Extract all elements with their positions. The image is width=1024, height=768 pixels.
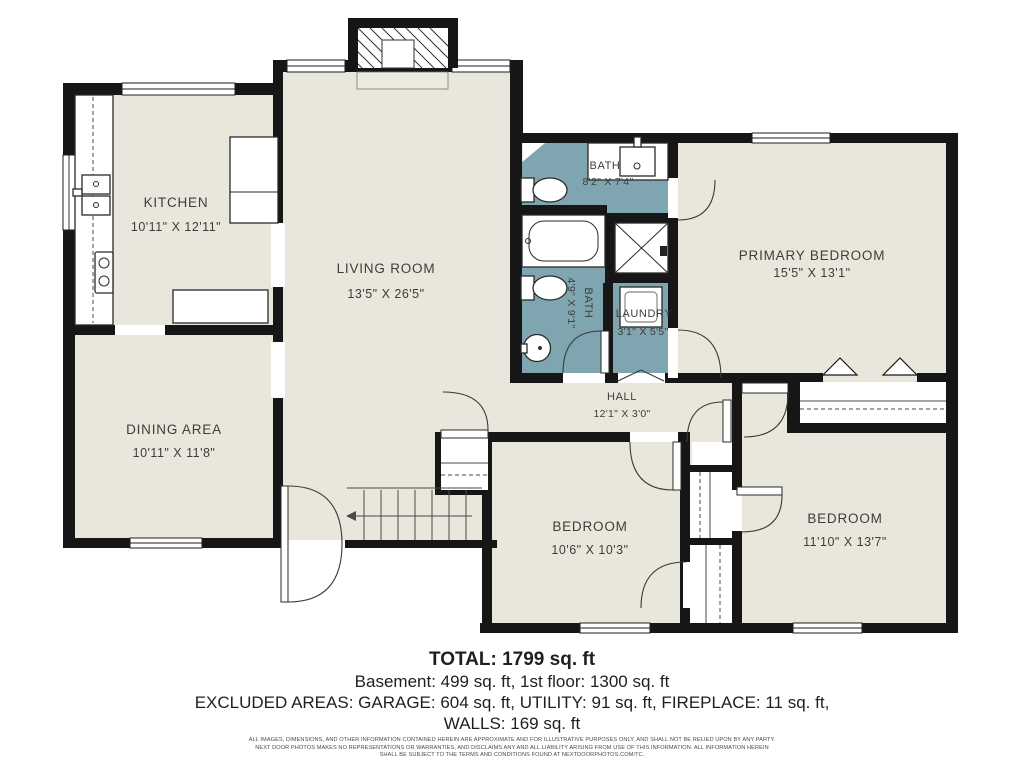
- disclaimer-line-2: NEXT DOOR PHOTOS MAKES NO REPRESENTATION…: [0, 745, 1024, 753]
- bedroom-right-dims: 11'10" X 13'7": [803, 535, 887, 549]
- disclaimer: ALL IMAGES, DIMENSIONS, AND OTHER INFORM…: [0, 737, 1024, 760]
- closet-right-bedroom: [690, 472, 732, 538]
- disclaimer-line-1: ALL IMAGES, DIMENSIONS, AND OTHER INFORM…: [0, 737, 1024, 745]
- bedroom-right-label: BEDROOM: [807, 511, 882, 526]
- floor-plan: KITCHEN 10'11" X 12'11" LIVING ROOM 13'5…: [0, 0, 1024, 645]
- hearth: [357, 72, 448, 89]
- toilet: [521, 178, 567, 202]
- walls-area: WALLS: 169 sq. ft: [0, 713, 1024, 734]
- bedroom-middle-dims: 10'6" X 10'3": [551, 543, 628, 557]
- area-summary: TOTAL: 1799 sq. ft Basement: 499 sq. ft,…: [0, 649, 1024, 760]
- disclaimer-line-3: SHALL BE SUBJECT TO THE TERMS AND CONDIT…: [0, 752, 1024, 760]
- kitchen-dims: 10'11" X 12'11": [131, 220, 221, 234]
- dining-living-opening: [271, 342, 285, 398]
- bath-main-dims: 8'2" X 7'4": [583, 176, 634, 188]
- window: [793, 623, 862, 633]
- dining-area-dims: 10'11" X 11'8": [133, 446, 216, 460]
- total-area: TOTAL: 1799 sq. ft: [0, 649, 1024, 671]
- primary-bedroom-label: PRIMARY BEDROOM: [739, 248, 886, 263]
- kitchen-dining-opening: [115, 325, 165, 335]
- bath-hall-dims: 4'9" X 9'1": [565, 278, 577, 329]
- bath-hall-label: BATH: [582, 288, 594, 319]
- bathtub: [522, 215, 605, 267]
- primary-closet: [800, 382, 946, 423]
- hall-dims: 12'1" X 3'0": [593, 408, 650, 420]
- kitchen-living-opening: [271, 223, 285, 287]
- excluded-area: EXCLUDED AREAS: GARAGE: 604 sq. ft, UTIL…: [0, 692, 1024, 713]
- window: [130, 538, 202, 548]
- window: [452, 60, 510, 72]
- closet-middle-bedroom: [690, 545, 732, 623]
- bath-main-label: BATH: [590, 160, 621, 172]
- linen-closet: [692, 442, 732, 465]
- kitchen-island-counter: [173, 290, 268, 323]
- hall-label: HALL: [607, 391, 637, 403]
- window: [287, 60, 345, 72]
- shower: [615, 223, 668, 273]
- toilet: [521, 276, 567, 300]
- laundry-dims: 3'1" X 5'5": [618, 326, 669, 338]
- living-room-dims: 13'5" X 26'5": [347, 287, 424, 301]
- dining-area-label: DINING AREA: [126, 422, 222, 437]
- window: [580, 623, 650, 633]
- window: [752, 133, 830, 143]
- bedroom-middle-label: BEDROOM: [552, 519, 627, 534]
- window: [122, 83, 235, 95]
- living-room-label: LIVING ROOM: [337, 261, 436, 276]
- floors-area: Basement: 499 sq. ft, 1st floor: 1300 sq…: [0, 671, 1024, 692]
- laundry-label: LAUNDRY: [616, 308, 673, 320]
- washer: [620, 287, 662, 327]
- floor-plan-page: KITCHEN 10'11" X 12'11" LIVING ROOM 13'5…: [0, 0, 1024, 768]
- kitchen-label: KITCHEN: [144, 195, 209, 210]
- primary-bedroom-dims: 15'5" X 13'1": [773, 266, 850, 280]
- vanity-sink: [588, 137, 668, 180]
- refrigerator-counter: [230, 137, 278, 223]
- stove: [95, 252, 113, 293]
